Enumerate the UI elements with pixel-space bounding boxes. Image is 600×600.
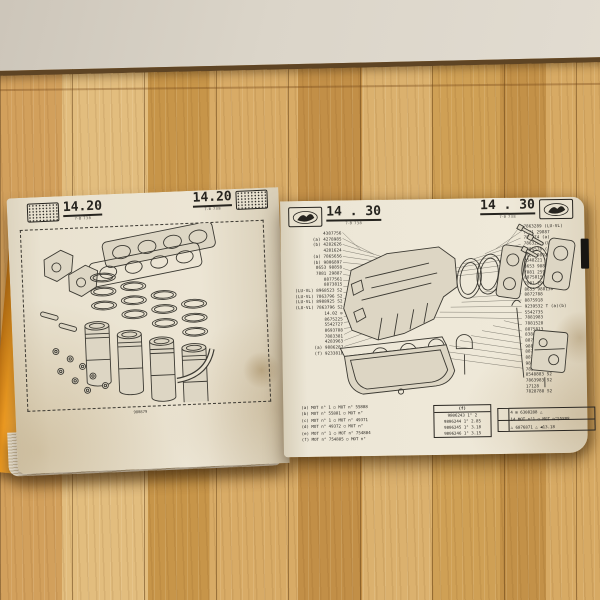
page-number: 14.20	[192, 191, 232, 208]
engine-number-notes: (a) MOT n° 1 ○ MOT n° 55888(b) MOT n° 55…	[301, 403, 428, 443]
open-parts-catalog-book: 14.20 7-B 738 14.20 7-B 738	[4, 183, 592, 479]
diagram-frame	[20, 220, 271, 412]
page-number: 14.20	[63, 201, 103, 218]
gaskets-and-covers	[454, 237, 577, 300]
page-number: 14 . 30	[326, 206, 381, 222]
brand-emblem-icon	[539, 199, 573, 220]
header-left: 14 . 30 7-B 738	[288, 206, 381, 227]
page-number-sub: 7-B 738	[193, 206, 232, 212]
app-row: △ 6876871 △ ◀13.18	[511, 422, 595, 431]
page-number: 14 . 30	[480, 199, 535, 215]
cylinder-liners	[85, 317, 209, 409]
size-table-rows: 9806243 1° 29806244 1° 2.859806245 1° 3.…	[434, 412, 490, 437]
figure-caption: 980879	[133, 409, 147, 415]
page-number-sub: 7-B 738	[480, 214, 535, 219]
brand-emblem-icon	[288, 207, 322, 228]
parts-overview-thumbnail-icon	[235, 190, 268, 210]
manifold-flanges	[44, 249, 99, 298]
parts-overview-thumbnail-icon	[27, 202, 60, 222]
size-table: (f) 9806243 1° 29806244 1° 2.859806245 1…	[433, 404, 492, 438]
pistons-liners-exploded-diagram	[21, 221, 268, 409]
left-page: 14.20 7-B 738 14.20 7-B 738	[6, 187, 289, 474]
oil-pan	[340, 337, 455, 395]
right-page: 14 . 30 7-B 738 14 . 30 7-B 738 4387756(…	[280, 197, 588, 458]
gudgeon-pins	[40, 310, 77, 333]
engine-block	[343, 247, 458, 341]
applicability-table: 4 ⊞ 6308288 △14 MOT n°1 ○ MOT n°55888 △ …	[497, 406, 595, 432]
header-right: 14.20 7-B 738	[192, 190, 268, 212]
page-number-sub: 7-B 738	[63, 216, 102, 222]
engine-block-exploded-diagram	[280, 223, 585, 400]
size-row: 9806246 1° 3.15	[435, 430, 491, 437]
header-left: 14.20 7-B 738	[27, 201, 103, 223]
dipstick-and-oil-pump	[512, 299, 569, 387]
cylinder-head	[101, 221, 216, 268]
header-right: 14 . 30 7-B 738	[480, 199, 573, 220]
note-row: (f) MOT n° 754885 ○ MOT n°	[302, 435, 428, 443]
